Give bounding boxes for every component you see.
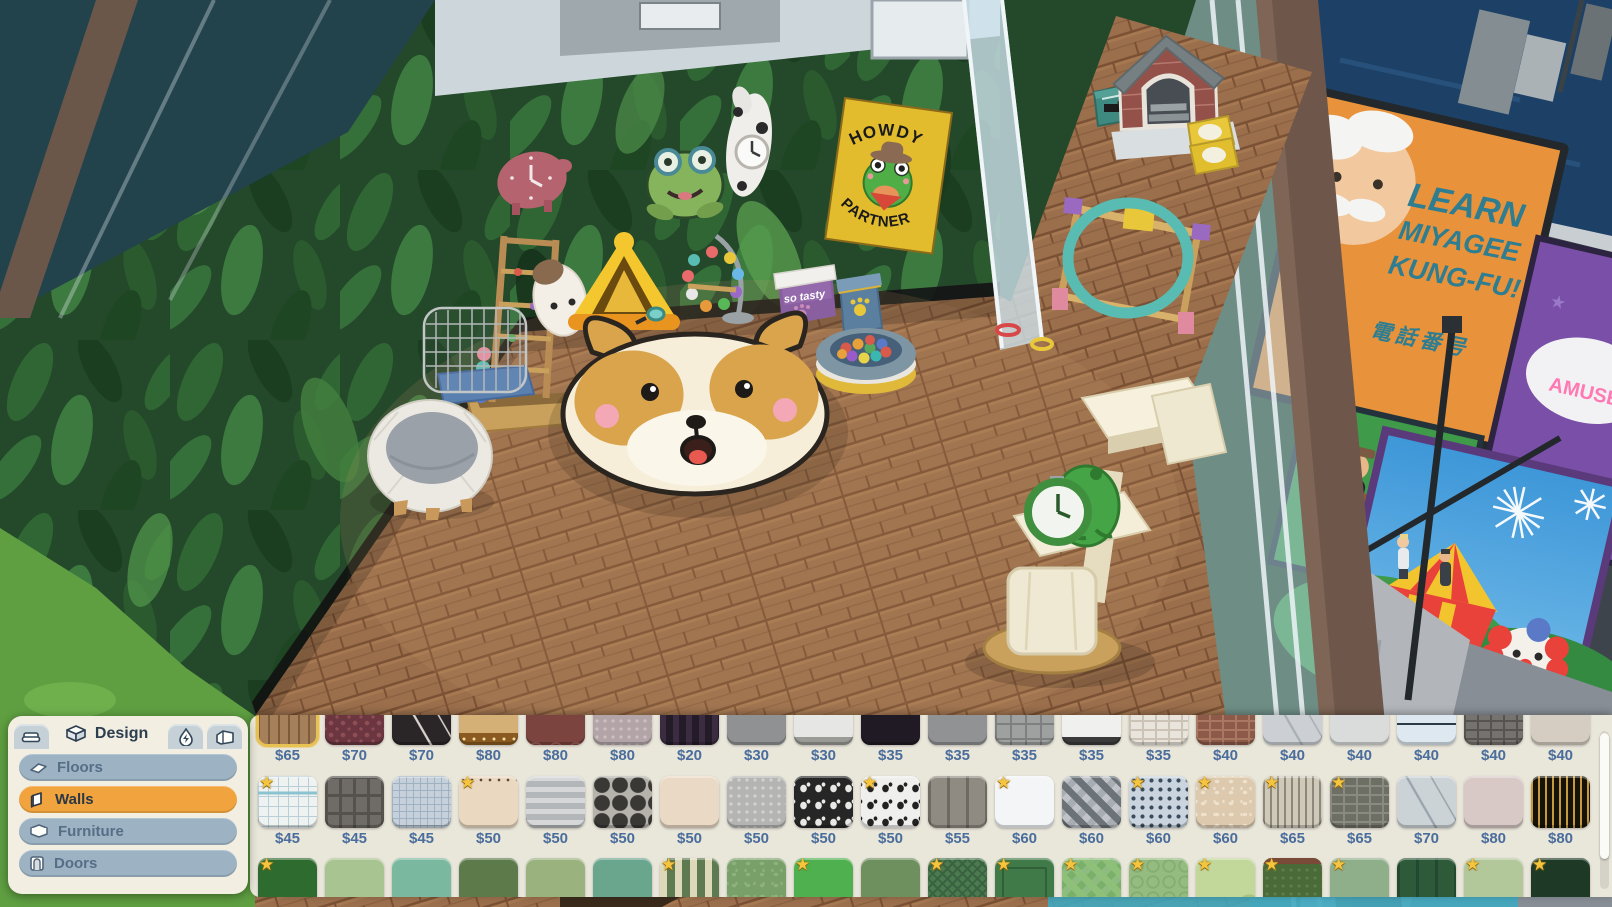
teal-toy-disc[interactable]: [648, 308, 664, 320]
wall-swatch[interactable]: [526, 858, 585, 897]
owned-star-icon: ★: [1331, 858, 1346, 875]
wall-swatch[interactable]: [1397, 858, 1456, 897]
swatch-price: $80: [476, 746, 501, 766]
wall-swatch-cell: $40: [1196, 715, 1255, 766]
wall-swatch-cell: ★: [1196, 858, 1255, 897]
wall-swatch[interactable]: [392, 858, 451, 897]
swatch-price: $60: [1012, 829, 1037, 849]
wall-swatch[interactable]: ★: [1196, 776, 1255, 828]
swatch-price: $55: [945, 829, 970, 849]
wall-swatch[interactable]: [727, 776, 786, 828]
wall-swatch[interactable]: ★: [1531, 858, 1590, 897]
catalog-scrollbar-thumb[interactable]: [1600, 733, 1609, 859]
wall-swatch-cell: $35: [928, 715, 987, 766]
owned-star-icon: ★: [259, 776, 274, 793]
owned-star-icon: ★: [1197, 858, 1212, 875]
wall-swatch-cell: ★: [1263, 858, 1322, 897]
category-doors[interactable]: Doors: [19, 850, 237, 877]
owned-star-icon: ★: [460, 776, 475, 793]
wall-swatch-cell: $35: [861, 715, 920, 766]
wall-swatch-cell: ★$60: [1196, 776, 1255, 849]
wall-swatch[interactable]: ★: [1263, 858, 1322, 897]
owned-star-icon: ★: [1063, 858, 1078, 875]
wall-swatch[interactable]: [861, 858, 920, 897]
wall-swatch-cell: ★: [1464, 858, 1523, 897]
design-tab-bar: Design: [8, 716, 248, 749]
swatch-price: $60: [1079, 829, 1104, 849]
swatch-price: $30: [744, 746, 769, 766]
swatch-price: $50: [543, 829, 568, 849]
wall-swatch-cell: $35: [995, 715, 1054, 766]
swatch-price: $50: [610, 829, 635, 849]
wall-swatch[interactable]: [459, 858, 518, 897]
shed-icon: [215, 729, 235, 745]
swatch-price: $50: [744, 829, 769, 849]
swatch-price: $60: [1146, 829, 1171, 849]
wall-swatch[interactable]: [1330, 715, 1389, 745]
wall-swatch-cell: $50: [794, 776, 853, 849]
wall-swatch[interactable]: ★: [794, 858, 853, 897]
owned-star-icon: ★: [1465, 858, 1480, 875]
wall-swatch[interactable]: [794, 776, 853, 828]
swatch-price: $70: [1414, 829, 1439, 849]
swatch-price: $70: [342, 746, 367, 766]
energy-drop-icon: [178, 728, 194, 746]
swatch-price: $35: [1079, 746, 1104, 766]
wall-swatch-cell: $40: [1464, 715, 1523, 766]
tab-utilities[interactable]: [168, 724, 203, 749]
wall-swatch-cell: ★: [995, 858, 1054, 897]
wall-swatch[interactable]: [928, 715, 987, 745]
wall-swatch-cell: ★: [1129, 858, 1188, 897]
supply-crates[interactable]: [1188, 116, 1238, 174]
category-floors-label: Floors: [57, 759, 103, 776]
wall-swatch[interactable]: [861, 715, 920, 745]
wall-swatch-cell: [392, 858, 451, 897]
wall-swatch-cell: ★: [258, 858, 317, 897]
wall-swatch[interactable]: ★: [1464, 858, 1523, 897]
wall-swatch-cell: $50: [660, 776, 719, 849]
owned-star-icon: ★: [862, 776, 877, 793]
wall-swatch[interactable]: ★: [258, 776, 317, 828]
wall-swatch-row: ★$45$45$45★$50$50$50$50$50$50★$50$55★$60…: [258, 776, 1590, 849]
wall-swatch[interactable]: [1531, 715, 1590, 745]
pet-food-bin[interactable]: [836, 273, 882, 334]
swatch-price: $80: [1481, 829, 1506, 849]
sofa-icon: [21, 730, 41, 744]
wall-swatch[interactable]: [1263, 715, 1322, 745]
howdy-poster[interactable]: HOWDY PARTNER: [825, 98, 952, 254]
swatch-price: $40: [1213, 746, 1238, 766]
swatch-price: $80: [543, 746, 568, 766]
wall-swatch[interactable]: ★: [861, 776, 920, 828]
wall-swatch-cell: [1397, 858, 1456, 897]
category-furniture-label: Furniture: [58, 823, 124, 840]
swatch-price: $20: [677, 746, 702, 766]
wall-swatch-cell: ★: [794, 858, 853, 897]
wall-swatch-cell: $50: [593, 776, 652, 849]
swatch-price: $50: [878, 829, 903, 849]
wall-swatch[interactable]: [392, 715, 451, 745]
owned-star-icon: ★: [795, 858, 810, 875]
wall-swatch[interactable]: [660, 776, 719, 828]
wall-swatch[interactable]: [1397, 776, 1456, 828]
doors-icon: [29, 855, 45, 872]
wall-swatch[interactable]: [1129, 715, 1188, 745]
wall-swatch[interactable]: [392, 776, 451, 828]
wall-swatch-cell: ★$60: [1129, 776, 1188, 849]
owned-star-icon: ★: [259, 858, 274, 875]
wall-swatch[interactable]: [928, 776, 987, 828]
swatch-price: $50: [811, 829, 836, 849]
tab-design[interactable]: Design: [53, 719, 160, 749]
catalog-scrollbar[interactable]: [1600, 731, 1609, 889]
wall-swatch-cell: $30: [727, 715, 786, 766]
swatch-price: $50: [476, 829, 501, 849]
wall-swatch[interactable]: [1464, 776, 1523, 828]
owned-star-icon: ★: [1130, 776, 1145, 793]
furniture-icon: [29, 824, 49, 839]
wall-swatch[interactable]: [593, 776, 652, 828]
wall-swatch-cell: $60: [1062, 776, 1121, 849]
category-doors-label: Doors: [54, 855, 97, 872]
wall-swatch-cell: [861, 858, 920, 897]
wall-swatch-cell: ★: [1531, 858, 1590, 897]
wall-swatch-cell: $35: [1129, 715, 1188, 766]
wall-swatch-cell: ★$50: [459, 776, 518, 849]
wall-swatch-cell: $70: [325, 715, 384, 766]
wall-swatch-cell: $80: [526, 715, 585, 766]
swatch-price: $35: [945, 746, 970, 766]
owned-star-icon: ★: [1532, 858, 1547, 875]
wall-swatch[interactable]: [660, 715, 719, 745]
design-card: Design Floors Walls Furniture: [8, 716, 248, 894]
wall-swatch[interactable]: ★: [1330, 776, 1389, 828]
swatch-price: $45: [409, 829, 434, 849]
wall-swatch[interactable]: ★: [660, 858, 719, 897]
wall-swatch[interactable]: [727, 715, 786, 745]
design-cube-icon: [65, 725, 87, 743]
wall-swatch-cell: ★: [1330, 858, 1389, 897]
swatch-price: $35: [1146, 746, 1171, 766]
swatch-price: $70: [409, 746, 434, 766]
wall-swatch[interactable]: ★: [1129, 858, 1188, 897]
wall-swatch[interactable]: [1464, 715, 1523, 745]
owned-star-icon: ★: [996, 858, 1011, 875]
wall-swatch-cell: $80: [593, 715, 652, 766]
swatch-price: $40: [1481, 746, 1506, 766]
owned-star-icon: ★: [1331, 776, 1346, 793]
wall-swatch[interactable]: [593, 858, 652, 897]
wall-swatch-cell: $70: [1397, 776, 1456, 849]
swatch-price: $45: [342, 829, 367, 849]
swatch-price: $80: [610, 746, 635, 766]
wall-swatch-cell: $70: [392, 715, 451, 766]
walls-icon: [29, 791, 46, 808]
wall-swatch-cell: [526, 858, 585, 897]
wall-swatch-cell: ★$45: [258, 776, 317, 849]
wall-swatch[interactable]: [1196, 715, 1255, 745]
swatch-price: $65: [275, 746, 300, 766]
swatch-price: $60: [1213, 829, 1238, 849]
owned-star-icon: ★: [996, 776, 1011, 793]
owned-star-icon: ★: [1264, 776, 1279, 793]
owned-star-icon: ★: [1130, 858, 1145, 875]
wall-swatch-cell: $55: [928, 776, 987, 849]
swatch-price: $40: [1548, 746, 1573, 766]
wall-swatch[interactable]: [526, 776, 585, 828]
wall-swatch[interactable]: ★: [1263, 776, 1322, 828]
wall-swatch[interactable]: ★: [459, 776, 518, 828]
wall-swatch[interactable]: ★: [1330, 858, 1389, 897]
wall-swatch[interactable]: ★: [1129, 776, 1188, 828]
swatch-price: $35: [878, 746, 903, 766]
wall-swatch-cell: $50: [727, 776, 786, 849]
owned-star-icon: ★: [1264, 858, 1279, 875]
wall-swatch-cell: $40: [1263, 715, 1322, 766]
category-walls-label: Walls: [55, 791, 94, 808]
design-tab-label: Design: [95, 725, 148, 743]
owned-star-icon: ★: [929, 858, 944, 875]
wall-swatch-cell: $50: [526, 776, 585, 849]
wall-swatch-cell: $35: [1062, 715, 1121, 766]
ball-pit[interactable]: [816, 328, 916, 394]
wall-swatch-cell: [727, 858, 786, 897]
tab-items[interactable]: [14, 724, 49, 749]
wall-swatch-row: $65$70$70$80$80$80$20$30$30$35$35$35$35$…: [258, 715, 1590, 766]
wall-swatch[interactable]: [1062, 715, 1121, 745]
category-floors[interactable]: Floors: [19, 754, 237, 781]
wall-swatch[interactable]: [459, 715, 518, 745]
wall-swatch-cell: ★: [1062, 858, 1121, 897]
swatch-price: $40: [1347, 746, 1372, 766]
wall-swatch-cell: $40: [1330, 715, 1389, 766]
wall-swatch-row: ★★★★★★★★★★★★: [258, 858, 1590, 897]
wall-swatch-cell: $45: [392, 776, 451, 849]
wall-swatch-cell: $20: [660, 715, 719, 766]
wall-swatch-cell: ★$50: [861, 776, 920, 849]
wall-swatch[interactable]: [995, 715, 1054, 745]
swatch-price: $30: [811, 746, 836, 766]
wall-swatch-cell: $40: [1531, 715, 1590, 766]
wall-swatch[interactable]: [526, 715, 585, 745]
wall-swatch[interactable]: ★: [258, 858, 317, 897]
wall-swatch-cell: $40: [1397, 715, 1456, 766]
swatch-price: $50: [677, 829, 702, 849]
category-walls[interactable]: Walls: [19, 786, 237, 813]
wall-swatch[interactable]: ★: [995, 776, 1054, 828]
wall-swatch[interactable]: [325, 776, 384, 828]
wall-swatch-cell: $80: [1531, 776, 1590, 849]
wall-swatch[interactable]: [258, 715, 317, 745]
wire-cage[interactable]: [424, 308, 534, 404]
swatch-price: $35: [1012, 746, 1037, 766]
sink: [640, 3, 720, 29]
wall-swatch[interactable]: [325, 715, 384, 745]
wall-swatch[interactable]: [1531, 776, 1590, 828]
wall-swatch[interactable]: [325, 858, 384, 897]
wall-catalog-panel: $65$70$70$80$80$80$20$30$30$35$35$35$35$…: [250, 715, 1612, 897]
wall-swatch-cell: ★$60: [995, 776, 1054, 849]
wall-swatch-cell: $65: [258, 715, 317, 766]
wall-swatch[interactable]: ★: [928, 858, 987, 897]
floors-icon: [29, 760, 48, 775]
wall-swatch-cell: $45: [325, 776, 384, 849]
wall-swatch[interactable]: [727, 858, 786, 897]
wall-swatch-cell: [325, 858, 384, 897]
white-door: [872, 0, 968, 58]
wall-swatch[interactable]: ★: [995, 858, 1054, 897]
owned-star-icon: ★: [1197, 776, 1212, 793]
swatch-price: $40: [1280, 746, 1305, 766]
frog-wall-art[interactable]: [644, 148, 725, 223]
wall-swatch-cell: [593, 858, 652, 897]
swatch-price: $40: [1414, 746, 1439, 766]
wall-swatch[interactable]: [1062, 776, 1121, 828]
wall-swatch-cell: $30: [794, 715, 853, 766]
wall-swatch[interactable]: [794, 715, 853, 745]
swatch-price: $65: [1280, 829, 1305, 849]
swatch-price: $45: [275, 829, 300, 849]
pet-bed[interactable]: [368, 400, 494, 520]
category-furniture[interactable]: Furniture: [19, 818, 237, 845]
wall-swatch-cell: ★: [928, 858, 987, 897]
wall-swatch[interactable]: [593, 715, 652, 745]
wall-swatch[interactable]: ★: [1196, 858, 1255, 897]
green-alarm-clock: [1028, 476, 1088, 542]
wall-swatch[interactable]: [1397, 715, 1456, 745]
swatch-price: $80: [1548, 829, 1573, 849]
wall-swatch-cell: [459, 858, 518, 897]
wall-swatch[interactable]: ★: [1062, 858, 1121, 897]
wall-swatch-cell: $80: [1464, 776, 1523, 849]
wall-swatch-cell: ★$65: [1263, 776, 1322, 849]
tab-rooms[interactable]: [207, 724, 242, 749]
wall-swatch-cell: ★$65: [1330, 776, 1389, 849]
corgi-rug[interactable]: [548, 313, 848, 518]
wall-swatch-cell: ★: [660, 858, 719, 897]
swatch-price: $65: [1347, 829, 1372, 849]
wall-swatch-cell: $80: [459, 715, 518, 766]
owned-star-icon: ★: [661, 858, 676, 875]
